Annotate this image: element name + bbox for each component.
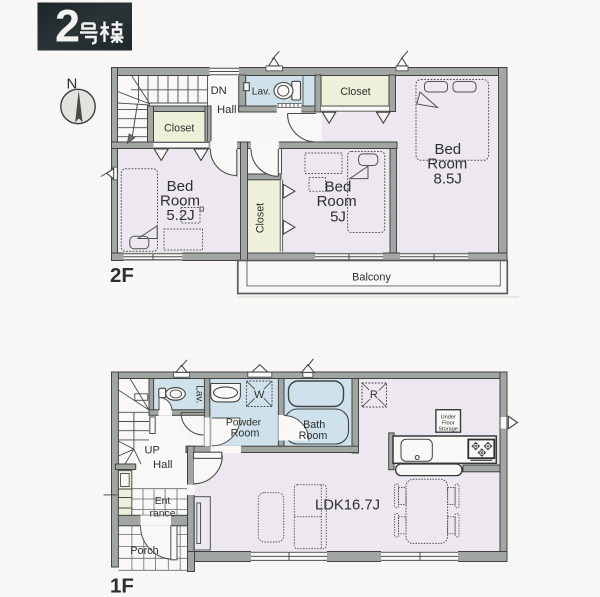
svg-text:Hall: Hall (217, 104, 236, 116)
svg-text:Porch: Porch (130, 545, 158, 557)
svg-text:Balcony: Balcony (352, 271, 391, 283)
svg-text:UP: UP (145, 444, 160, 456)
svg-text:LDK16.7J: LDK16.7J (315, 497, 380, 513)
svg-text:DN: DN (211, 85, 227, 97)
svg-text:2: 2 (55, 1, 80, 52)
svg-text:Closet: Closet (164, 122, 194, 134)
svg-text:Room: Room (231, 428, 260, 440)
svg-text:2F: 2F (110, 264, 134, 287)
svg-text:Storage: Storage (438, 426, 458, 432)
svg-text:W: W (254, 389, 265, 401)
svg-text:1F: 1F (110, 574, 134, 597)
svg-text:Closet: Closet (255, 203, 267, 233)
svg-text:R: R (370, 389, 378, 401)
svg-text:Room: Room (299, 430, 328, 442)
svg-text:5.2J: 5.2J (166, 207, 194, 224)
svg-text:5J: 5J (330, 208, 346, 225)
svg-text:Lav.: Lav. (252, 86, 270, 97)
svg-text:Hall: Hall (153, 459, 172, 471)
svg-text:8.5J: 8.5J (434, 171, 462, 188)
svg-text:rance: rance (150, 508, 176, 519)
svg-text:Lav.: Lav. (194, 385, 205, 403)
svg-text:Ent: Ent (155, 496, 171, 507)
svg-text:Closet: Closet (340, 86, 370, 98)
